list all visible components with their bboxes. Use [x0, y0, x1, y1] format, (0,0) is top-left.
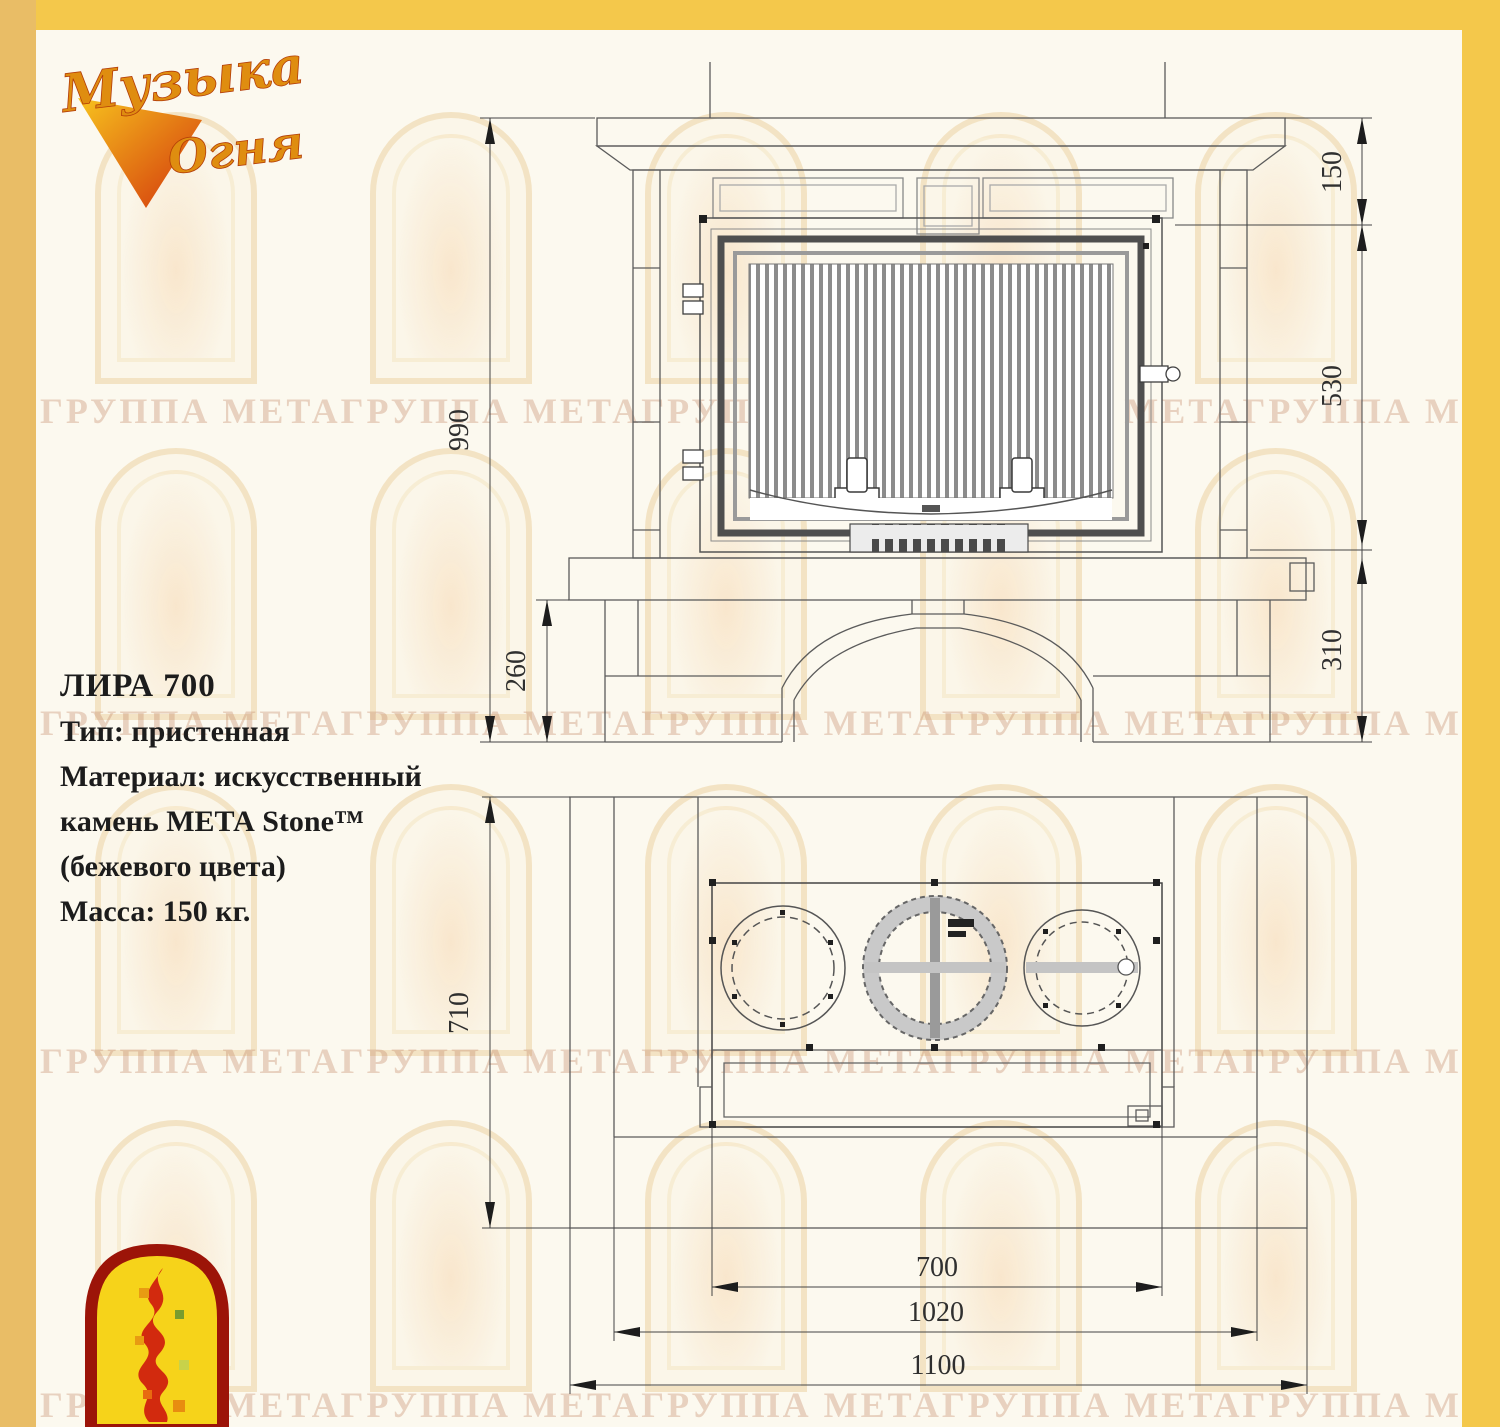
spec-block: ЛИРА 700 Тип: пристенная Материал: искус… [60, 664, 422, 934]
drawing-sheet: ГРУППА МЕТАГРУППА МЕТАГРУППА МЕТАГРУППА … [0, 0, 1500, 1427]
spec-line-material: Материал: искусственный [60, 754, 422, 799]
door-bolts [699, 215, 1160, 249]
plan-view-arrows [485, 797, 1307, 1390]
door-nameplate [850, 524, 1028, 552]
flue-circle-right [1024, 910, 1140, 1026]
spec-line-color: (бежевого цвета) [60, 844, 422, 889]
plan-view-dimensions [482, 797, 1307, 1394]
spec-line-type: Тип: пристенная [60, 709, 422, 754]
firebox-grill [749, 264, 1113, 498]
meta-arch-logo-icon [82, 1240, 232, 1427]
dim-firebox-width: 700 [916, 1252, 958, 1283]
dim-base-height-right: 310 [1317, 629, 1348, 671]
model-title: ЛИРА 700 [60, 664, 422, 709]
logo-word-1: Музыка [56, 46, 307, 125]
dim-firebox-height: 530 [1317, 365, 1348, 407]
dim-inner-width: 1020 [908, 1297, 964, 1328]
dim-total-width: 1100 [911, 1350, 966, 1381]
plan-view [570, 797, 1307, 1228]
music-of-fire-logo: Музыка Огня [50, 46, 350, 216]
door-handle [1140, 366, 1180, 382]
flue-circle-left [721, 906, 845, 1030]
border-right [1462, 0, 1500, 1427]
spec-line-material2: камень МЕТА Stone™ [60, 799, 422, 844]
dim-total-height: 990 [444, 409, 475, 451]
border-top [0, 0, 1500, 30]
dim-mantel-height: 150 [1317, 151, 1348, 193]
spec-line-mass: Масса: 150 кг. [60, 889, 422, 934]
dim-base-height-left: 260 [501, 650, 532, 692]
border-left [0, 0, 36, 1427]
flue-circle-center [863, 896, 1007, 1040]
front-view [569, 62, 1314, 742]
dim-depth: 710 [444, 992, 475, 1034]
